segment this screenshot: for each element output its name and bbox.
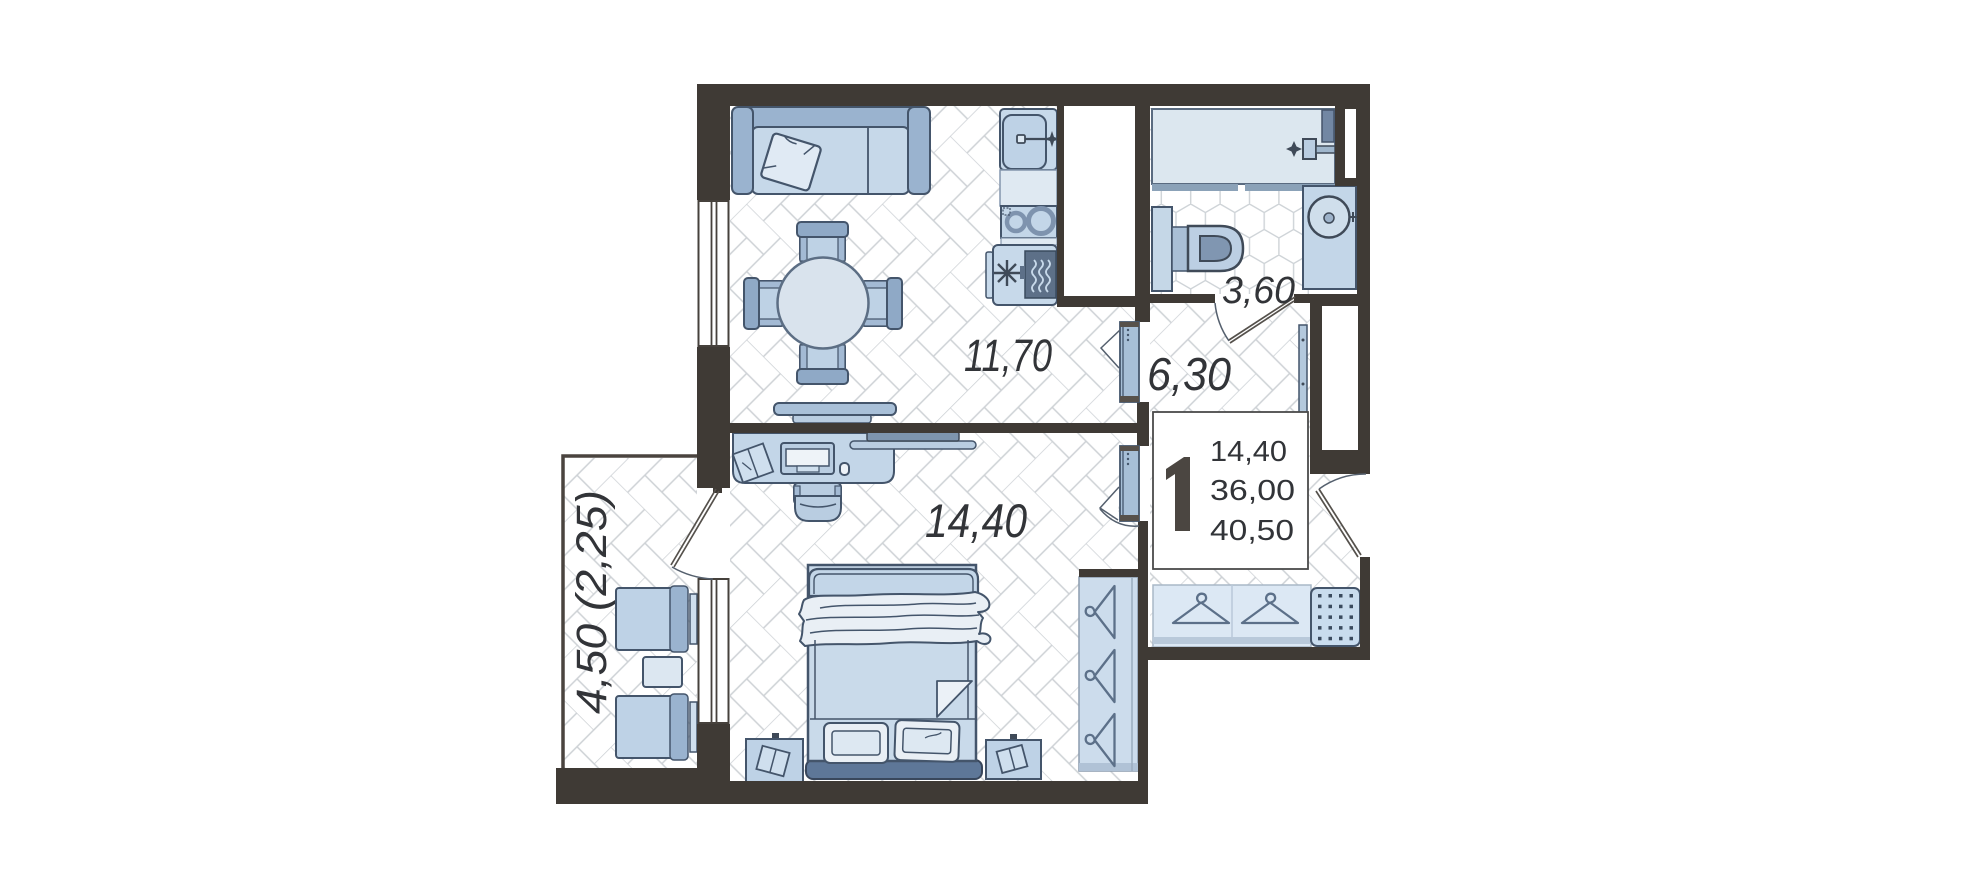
svg-text:36,00: 36,00 — [1210, 475, 1295, 507]
svg-text:14,40: 14,40 — [1210, 436, 1287, 468]
svg-text:3,60: 3,60 — [1222, 270, 1295, 312]
svg-text:4,50 (2,25): 4,50 (2,25) — [568, 490, 616, 714]
svg-text:14,40: 14,40 — [925, 494, 1027, 547]
svg-text:11,70: 11,70 — [964, 330, 1052, 381]
svg-text:40,50: 40,50 — [1210, 515, 1294, 547]
svg-text:6,30: 6,30 — [1147, 348, 1231, 400]
